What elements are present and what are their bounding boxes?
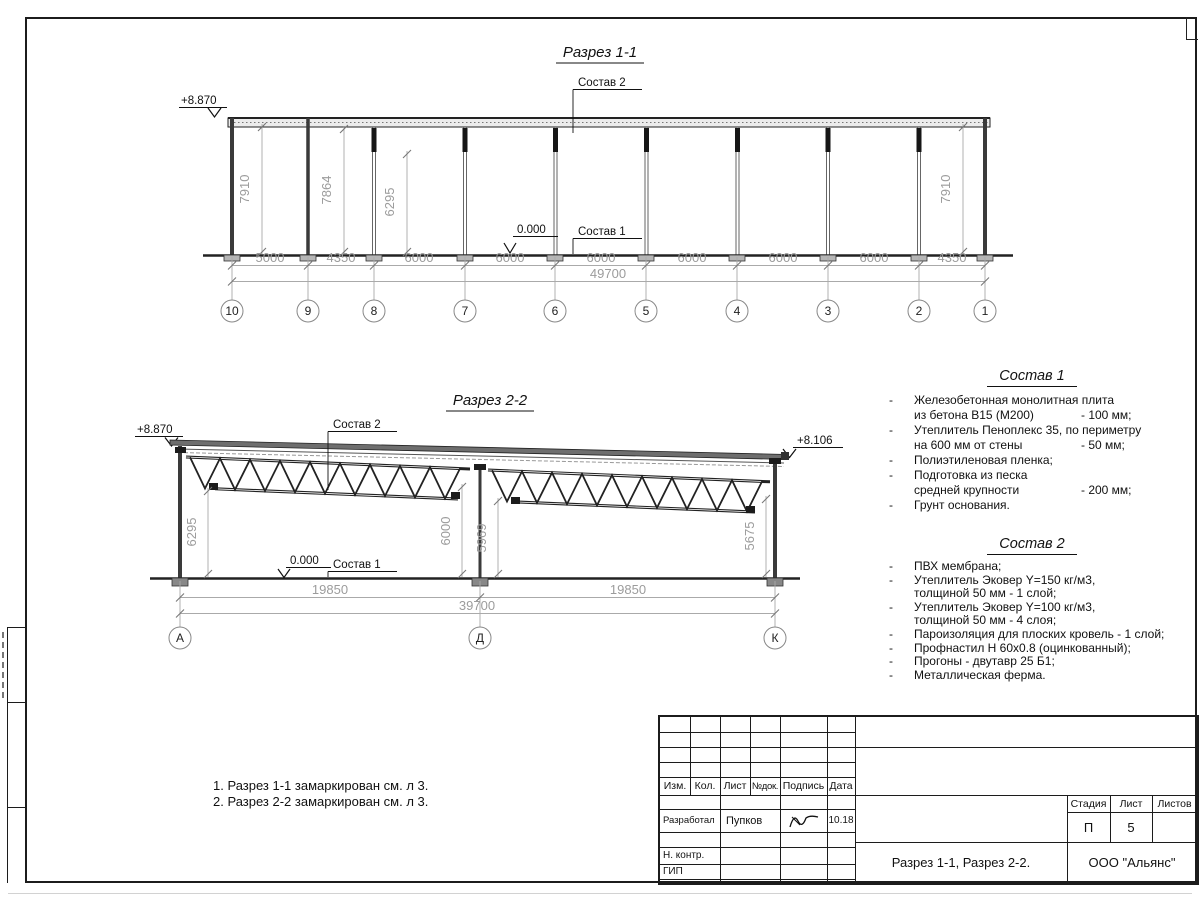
note-line: 2. Разрез 2-2 замаркирован см. л 3. xyxy=(213,794,428,810)
callout-sostav1-s2: Состав 1 xyxy=(328,559,397,577)
section-2-2: Разрез 2-2 +8.870 +8.106 xyxy=(135,392,843,649)
grid-bubbles-1-1: 10 9 8 7 6 5 4 3 2 1 xyxy=(221,300,996,322)
vdim-label: 7864 xyxy=(319,176,334,205)
grid-bubble-label: А xyxy=(176,631,184,645)
tb-header-list: Лист xyxy=(720,777,750,795)
wall-top-node xyxy=(175,447,186,453)
composition2-list: -ПВХ мембрана; -Утеплитель Эковер Y=150 … xyxy=(884,560,1184,682)
zero-level-mark: 0.000 xyxy=(504,224,558,253)
total-dim: 39700 xyxy=(459,598,495,613)
tb-header-podpis: Подпись xyxy=(780,777,827,795)
tb-stage-header: Стадия xyxy=(1067,795,1110,812)
wall-top-node xyxy=(769,458,781,464)
tb-doc-title: Разрез 1-1, Разрез 2-2. xyxy=(855,842,1067,883)
note-line: 1. Разрез 1-1 замаркирован см. л 3. xyxy=(213,778,428,794)
bay-dim: 4350 xyxy=(327,250,356,265)
tb-sheet-header: Лист xyxy=(1110,795,1152,812)
list-item: -Прогоны - двутавр 25 Б1; xyxy=(884,655,1184,669)
bay-dim: 19850 xyxy=(312,582,348,597)
svg-text:0.000: 0.000 xyxy=(290,555,319,567)
tb-header-kol: Кол. xyxy=(690,777,720,795)
tb-ncontr-label: Н. контр. xyxy=(660,847,723,864)
list-item: -ПВХ мембрана; xyxy=(884,560,1184,574)
bay-dim: 5000 xyxy=(256,250,285,265)
column-top-node xyxy=(474,464,486,470)
tb-header-data: Дата xyxy=(827,777,855,795)
grid-bubble-label: 4 xyxy=(734,304,741,318)
tb-signature xyxy=(780,809,827,832)
drawing-sheet: Разрез 1-1 +8.870 xyxy=(0,0,1200,900)
tb-developed-label: Разработал xyxy=(660,809,723,832)
elevation-label: +8.870 xyxy=(181,95,217,107)
grid-bubble-label: К xyxy=(772,631,779,645)
elevation-label: +8.870 xyxy=(137,424,173,436)
elevation-mark-8870: +8.870 xyxy=(179,95,227,117)
section-1-1: Разрез 1-1 +8.870 xyxy=(179,44,1013,322)
list-item: -Утеплитель Пеноплекс 35, по периметру xyxy=(884,423,1169,438)
section1-title: Разрез 1-1 xyxy=(563,44,637,61)
list-item: -Подготовка из песка xyxy=(884,468,1169,483)
elevation-arrow-icon xyxy=(278,569,290,578)
list-item: толщиной 50 мм - 4 слоя; xyxy=(884,614,1184,628)
vdim-label: 6000 xyxy=(438,517,453,546)
grid-bubbles-2-2: А Д К xyxy=(169,627,786,649)
composition1-heading: Состав 1 xyxy=(987,368,1077,387)
list-item: -Грунт основания. xyxy=(884,498,1169,513)
svg-text:0.000: 0.000 xyxy=(517,224,546,236)
bay-dim: 4350 xyxy=(938,250,967,265)
vdim-label: 6295 xyxy=(184,518,199,547)
list-item: -Утеплитель Эковер Y=150 кг/м3, xyxy=(884,574,1184,588)
grid-bubble-label: 6 xyxy=(552,304,559,318)
elevation-label: +8.106 xyxy=(797,435,833,447)
list-item: -Металлическая ферма. xyxy=(884,669,1184,683)
grid-bubble-label: 7 xyxy=(462,304,469,318)
tb-company: ООО "Альянс" xyxy=(1067,842,1197,883)
roof-package xyxy=(170,440,788,460)
tb-gip-label: ГИП xyxy=(660,864,723,879)
svg-text:Состав 2: Состав 2 xyxy=(578,77,626,89)
grid-bubble-label: 8 xyxy=(371,304,378,318)
composition1-list: -Железобетонная монолитная плита из бето… xyxy=(884,393,1169,513)
sheet-notes: 1. Разрез 1-1 замаркирован см. л 3. 2. Р… xyxy=(213,778,428,810)
total-dim: 49700 xyxy=(590,266,626,281)
list-item: средней крупности- 200 мм; xyxy=(884,483,1169,498)
list-item: -Профнастил Н 60х0.8 (оцинкованный); xyxy=(884,642,1184,656)
roof-end-plate xyxy=(781,452,789,460)
tb-sheet-value: 5 xyxy=(1110,812,1152,842)
grid-bubble-label: Д xyxy=(476,631,484,645)
signature-icon xyxy=(784,811,824,831)
bay-dim: 6000 xyxy=(860,250,889,265)
title-block: Изм. Кол. Лист №док. Подпись Дата Разраб… xyxy=(658,715,1199,885)
truss-right xyxy=(488,470,770,513)
column-top-connectors xyxy=(372,128,922,152)
svg-text:Состав 2: Состав 2 xyxy=(333,419,381,431)
list-item: -Полиэтиленовая пленка; xyxy=(884,453,1169,468)
list-item: -Утеплитель Эковер Y=100 кг/м3, xyxy=(884,601,1184,615)
bay-dim: 6000 xyxy=(405,250,434,265)
grid-bubble-label: 10 xyxy=(225,304,239,318)
bay-dim: 6000 xyxy=(496,250,525,265)
bay-dim: 19850 xyxy=(610,582,646,597)
bay-dim: 6000 xyxy=(587,250,616,265)
tb-stage-value: П xyxy=(1067,812,1110,842)
grid-bubble-label: 2 xyxy=(916,304,923,318)
bay-dim: 6000 xyxy=(678,250,707,265)
list-item: -Пароизоляция для плоских кровель - 1 сл… xyxy=(884,628,1184,642)
elevation-arrow-icon xyxy=(208,108,221,117)
vdim-label: 7910 xyxy=(237,175,252,204)
list-item: толщиной 50 мм - 1 слой; xyxy=(884,587,1184,601)
grid-bubble-label: 1 xyxy=(982,304,989,318)
tb-sheets-header: Листов xyxy=(1152,795,1197,812)
grid-bubble-label: 9 xyxy=(305,304,312,318)
svg-text:Состав 1: Состав 1 xyxy=(333,559,381,571)
grid-bubble-label: 3 xyxy=(825,304,832,318)
tb-header-izm: Изм. xyxy=(660,777,690,795)
list-item: -Железобетонная монолитная плита xyxy=(884,393,1169,408)
grid-bubble-label: 5 xyxy=(643,304,650,318)
elevation-mark-8106: +8.106 xyxy=(783,435,843,458)
tb-developed-name: Пупков xyxy=(720,809,786,832)
vdim-label: 7910 xyxy=(938,175,953,204)
list-item: из бетона В15 (М200)- 100 мм; xyxy=(884,408,1169,423)
vdim-label: 5675 xyxy=(742,522,757,551)
vdim-label: 6295 xyxy=(382,188,397,217)
vdim-label: 5969 xyxy=(474,524,489,553)
svg-text:Состав 1: Состав 1 xyxy=(578,226,626,238)
composition2-heading: Состав 2 xyxy=(987,536,1077,555)
tb-header-ndok: №док. xyxy=(750,777,780,795)
zero-level-mark-s2: 0.000 xyxy=(278,555,331,578)
list-item: на 600 мм от стены- 50 мм; xyxy=(884,438,1169,453)
bay-dim: 6000 xyxy=(769,250,798,265)
tb-developed-date: 10.18 xyxy=(827,809,855,832)
section2-title: Разрез 2-2 xyxy=(453,392,528,409)
